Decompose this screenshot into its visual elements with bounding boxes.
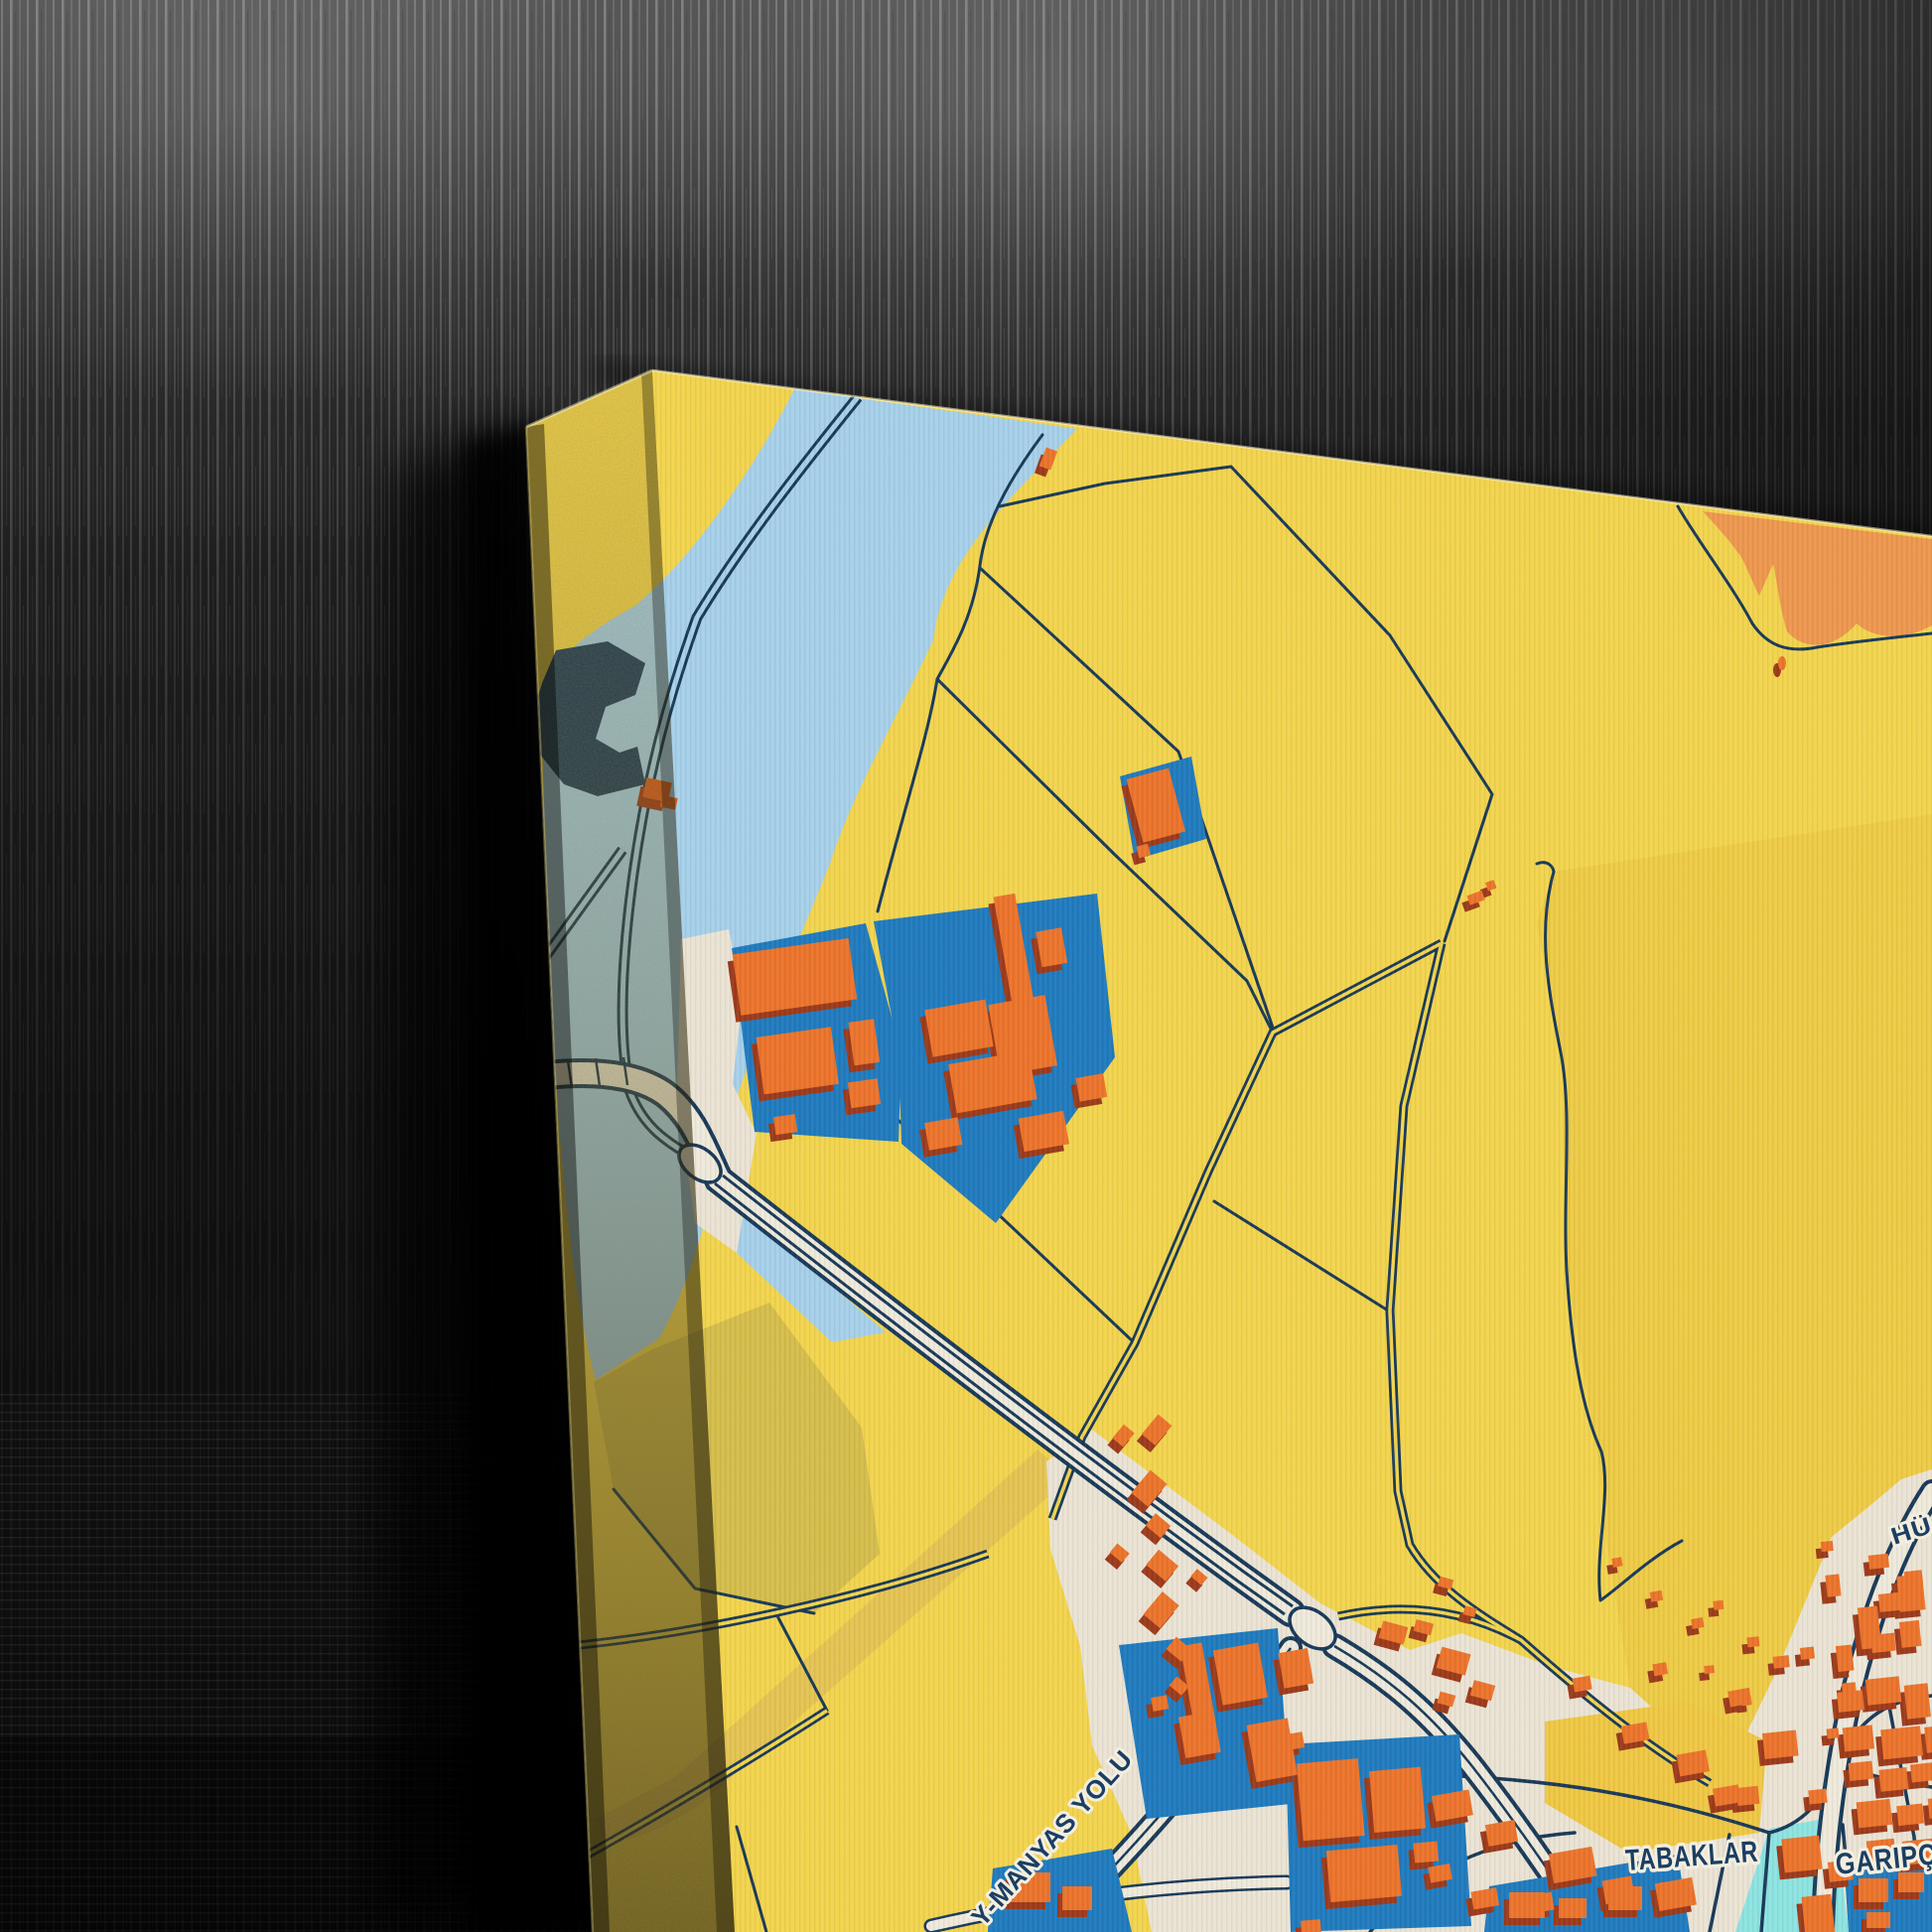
canvas-face-texture bbox=[635, 357, 1932, 1932]
photo-canvas-map-print: TABAKLAR GARIPÇE Y-MANYAS YOLU HÜ bbox=[0, 0, 1932, 1932]
